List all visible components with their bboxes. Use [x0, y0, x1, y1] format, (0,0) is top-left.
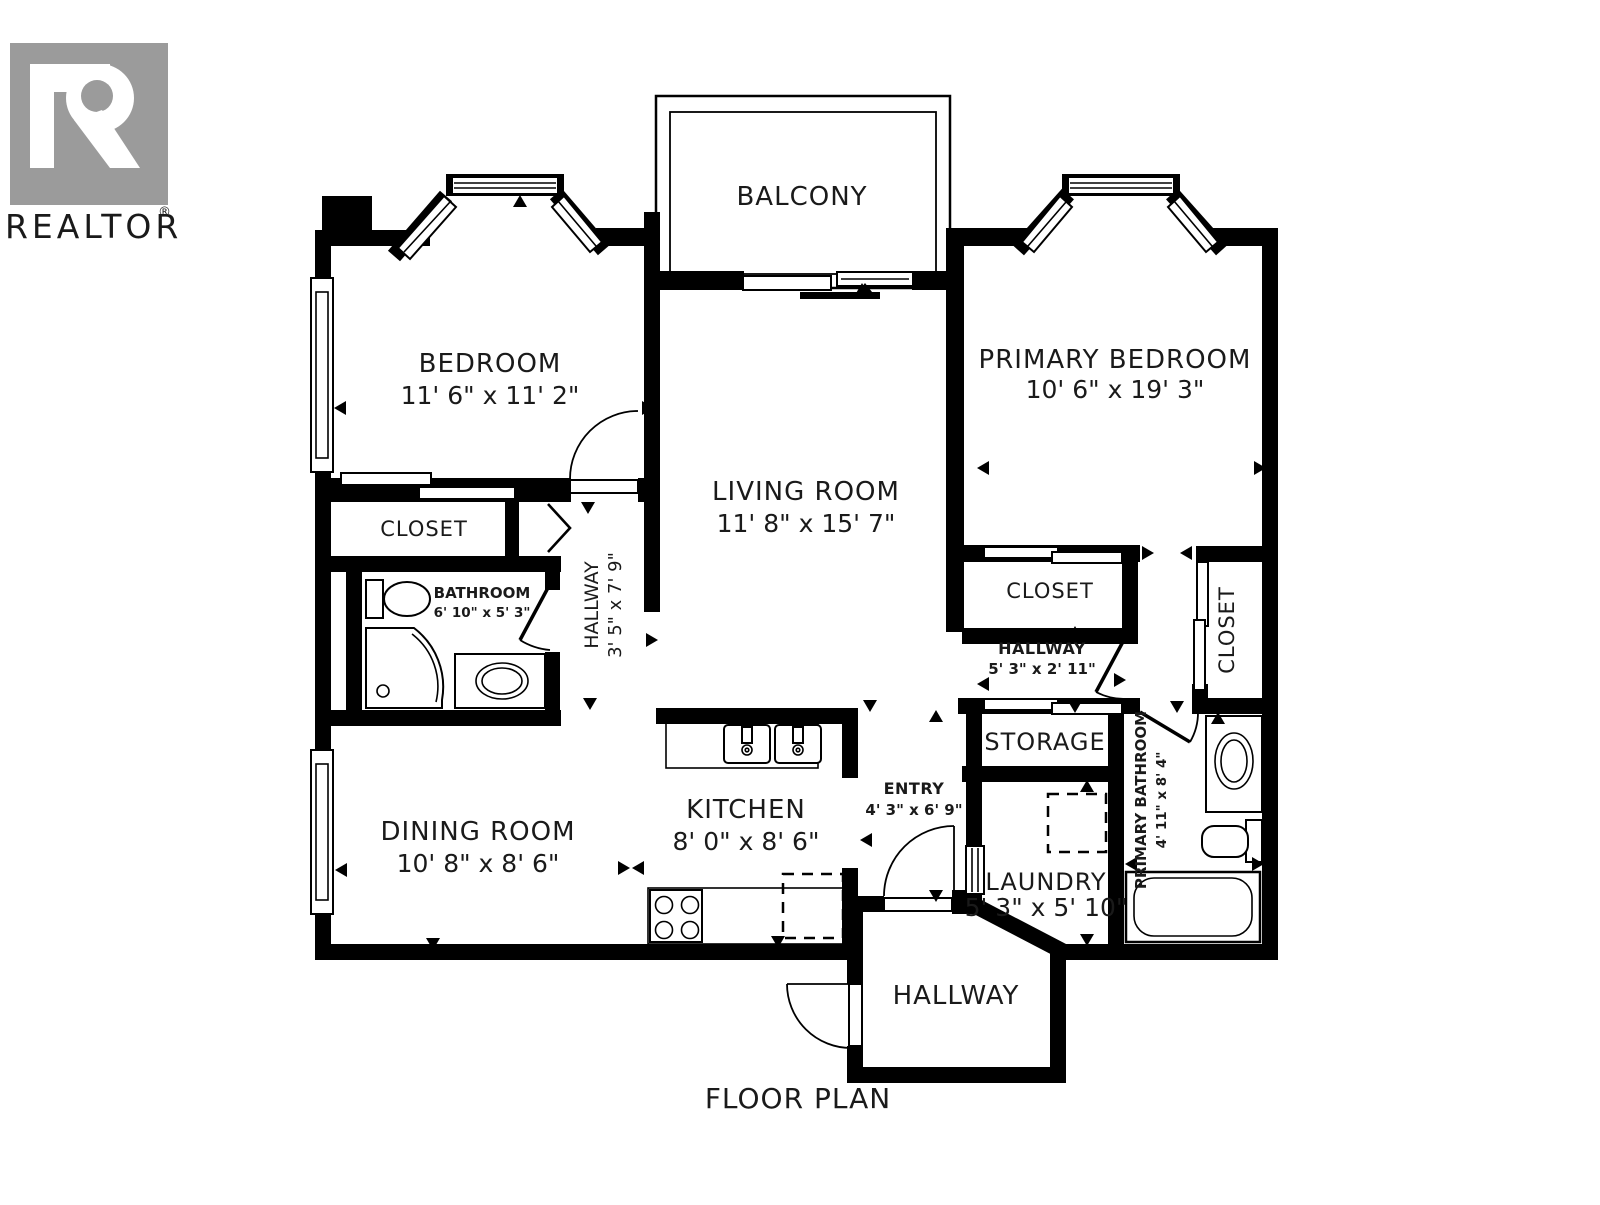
dimension-arrow — [860, 833, 872, 847]
label-primary-bedroom: PRIMARY BEDROOM — [979, 345, 1252, 375]
dimension-arrow — [1170, 701, 1184, 713]
label-dining-room-dims: 10' 8" x 8' 6" — [397, 849, 560, 878]
dimension-arrow — [977, 461, 989, 475]
dimension-arrow — [632, 861, 644, 875]
bedroom-door[interactable] — [570, 411, 638, 493]
primary-bath-sink-icon — [1206, 716, 1262, 812]
label-bedroom: BEDROOM — [419, 349, 562, 379]
label-bathroom: BATHROOM — [434, 584, 531, 602]
dimension-arrow — [1180, 546, 1192, 560]
label-balcony: BALCONY — [736, 182, 867, 212]
washer-dashed-outline — [1048, 794, 1106, 852]
balcony-sliding-door[interactable] — [743, 272, 913, 299]
floor-plan-drawing: REALTOR ® — [0, 0, 1600, 1200]
bathroom-sink-icon — [455, 654, 545, 708]
kitchen-double-sink-icon — [666, 722, 821, 768]
label-laundry: LAUNDRY — [985, 868, 1106, 896]
label-kitchen-dims: 8' 0" x 8' 6" — [673, 827, 820, 856]
label-primary-bedroom-dims: 10' 6" x 19' 3" — [1026, 375, 1205, 404]
label-closet-primary: CLOSET — [1006, 579, 1094, 603]
dimension-arrow — [977, 677, 989, 691]
label-primary-bathroom: PRIMARY BATHROOM — [1132, 711, 1150, 889]
label-kitchen: KITCHEN — [686, 795, 806, 825]
walls — [315, 174, 1278, 1083]
label-hallway-main-dims: 3' 5" x 7' 9" — [605, 552, 626, 658]
bedroom-window-left — [311, 278, 333, 472]
laundry-pocket-door[interactable] — [966, 846, 984, 894]
dimension-arrow — [646, 633, 658, 647]
label-primary-bathroom-dims: 4' 11" x 8' 4" — [1154, 752, 1170, 849]
label-hallway-primary: HALLWAY — [998, 639, 1086, 658]
dimension-arrow — [334, 401, 346, 415]
bedroom-bay-windows — [398, 177, 602, 259]
realtor-logo: REALTOR ® — [5, 43, 182, 246]
corner-shower-icon — [366, 628, 443, 708]
toilet-icon — [366, 580, 430, 618]
label-dining-room: DINING ROOM — [380, 817, 575, 847]
dishwasher-dashed-outline — [783, 874, 843, 938]
label-hallway-entrance: HALLWAY — [893, 981, 1020, 1011]
label-living-room-dims: 11' 8" x 15' 7" — [717, 509, 896, 538]
dimension-arrow — [513, 195, 527, 207]
hall-closet-bifold-door[interactable] — [548, 504, 570, 552]
dimension-arrow — [1142, 546, 1154, 560]
label-hallway-primary-dims: 5' 3" x 2' 11" — [988, 660, 1096, 678]
label-hallway-main: HALLWAY — [581, 561, 603, 649]
label-living-room: LIVING ROOM — [712, 477, 900, 507]
label-bedroom-dims: 11' 6" x 11' 2" — [401, 381, 580, 410]
primary-suite-door[interactable] — [1096, 636, 1126, 699]
label-storage: STORAGE — [984, 728, 1105, 756]
dining-window-left — [311, 750, 333, 914]
page-title: FLOOR PLAN — [705, 1082, 891, 1115]
primary-bay-windows — [1022, 177, 1218, 252]
suite-entrance-door[interactable] — [787, 984, 862, 1048]
dimension-arrow — [929, 710, 943, 722]
right-closet-sliding-door[interactable] — [1194, 562, 1208, 690]
label-laundry-dims: 5' 3" x 5' 10" — [965, 893, 1128, 922]
realtor-wordmark: REALTOR — [5, 207, 182, 246]
dimension-arrow — [335, 863, 347, 877]
stove-icon — [648, 888, 845, 944]
entry-door[interactable] — [884, 826, 954, 911]
dimension-arrow — [1114, 673, 1126, 687]
floor-plan-page: REALTOR ® — [0, 0, 1600, 1200]
registered-mark: ® — [158, 205, 171, 220]
label-closet-bedroom: CLOSET — [380, 517, 468, 541]
label-bathroom-dims: 6' 10" x 5' 3" — [434, 605, 531, 621]
dimension-arrow — [618, 861, 630, 875]
dimension-arrow — [581, 502, 595, 514]
primary-toilet-icon — [1202, 820, 1262, 862]
dimension-arrow — [863, 700, 877, 712]
label-entry-dims: 4' 3" x 6' 9" — [865, 801, 962, 819]
dimension-arrow — [583, 698, 597, 710]
label-closet-primary-2: CLOSET — [1215, 586, 1239, 674]
label-entry: ENTRY — [884, 779, 945, 798]
